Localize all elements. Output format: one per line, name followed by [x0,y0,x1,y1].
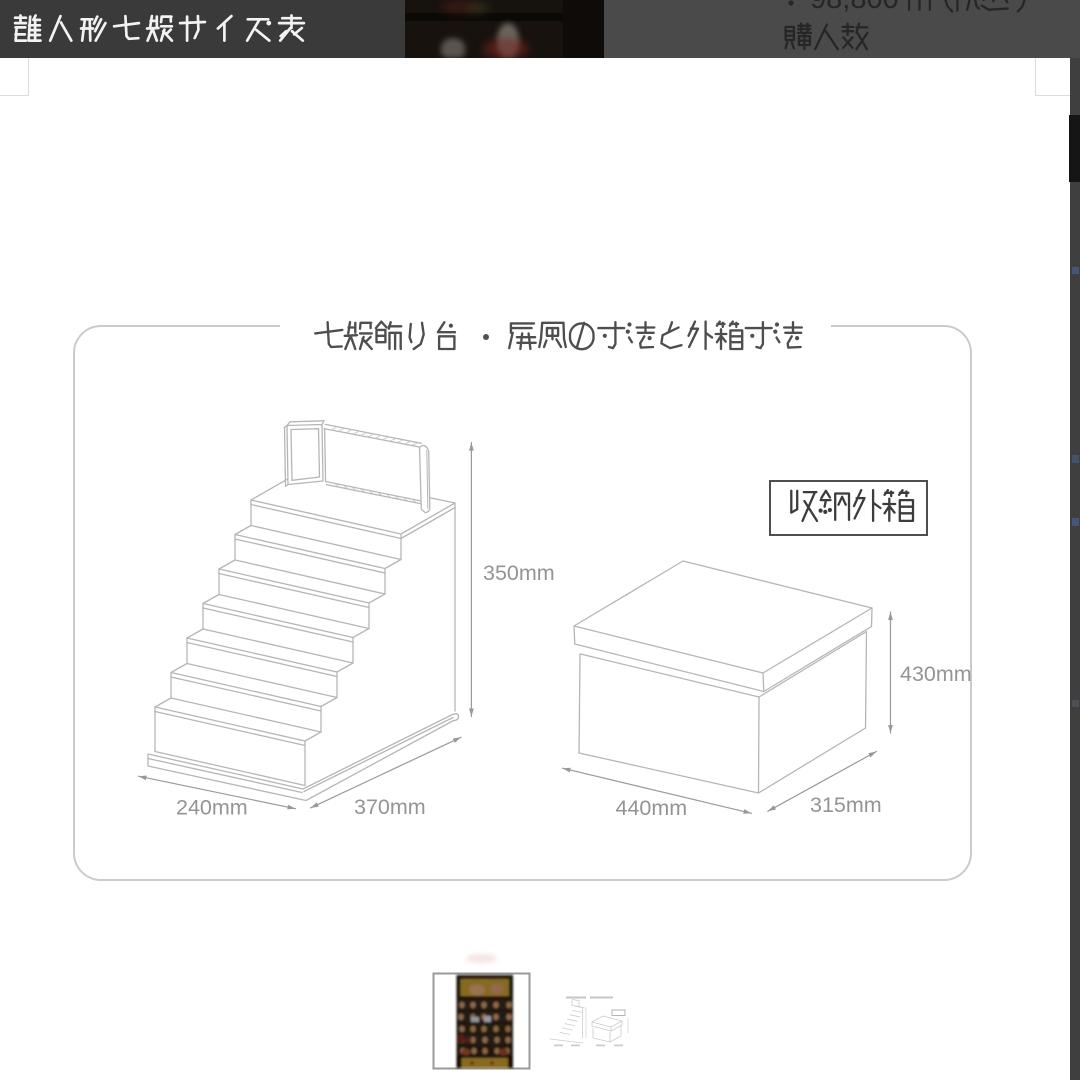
svg-text:440mm: 440mm [616,796,688,820]
svg-text:98,800: 98,800 [810,0,899,15]
svg-text:430mm: 430mm [900,662,972,686]
svg-text:350mm: 350mm [483,561,555,585]
svg-text:240mm: 240mm [176,796,248,820]
svg-text:315mm: 315mm [810,793,882,817]
svg-text:370mm: 370mm [354,795,426,819]
